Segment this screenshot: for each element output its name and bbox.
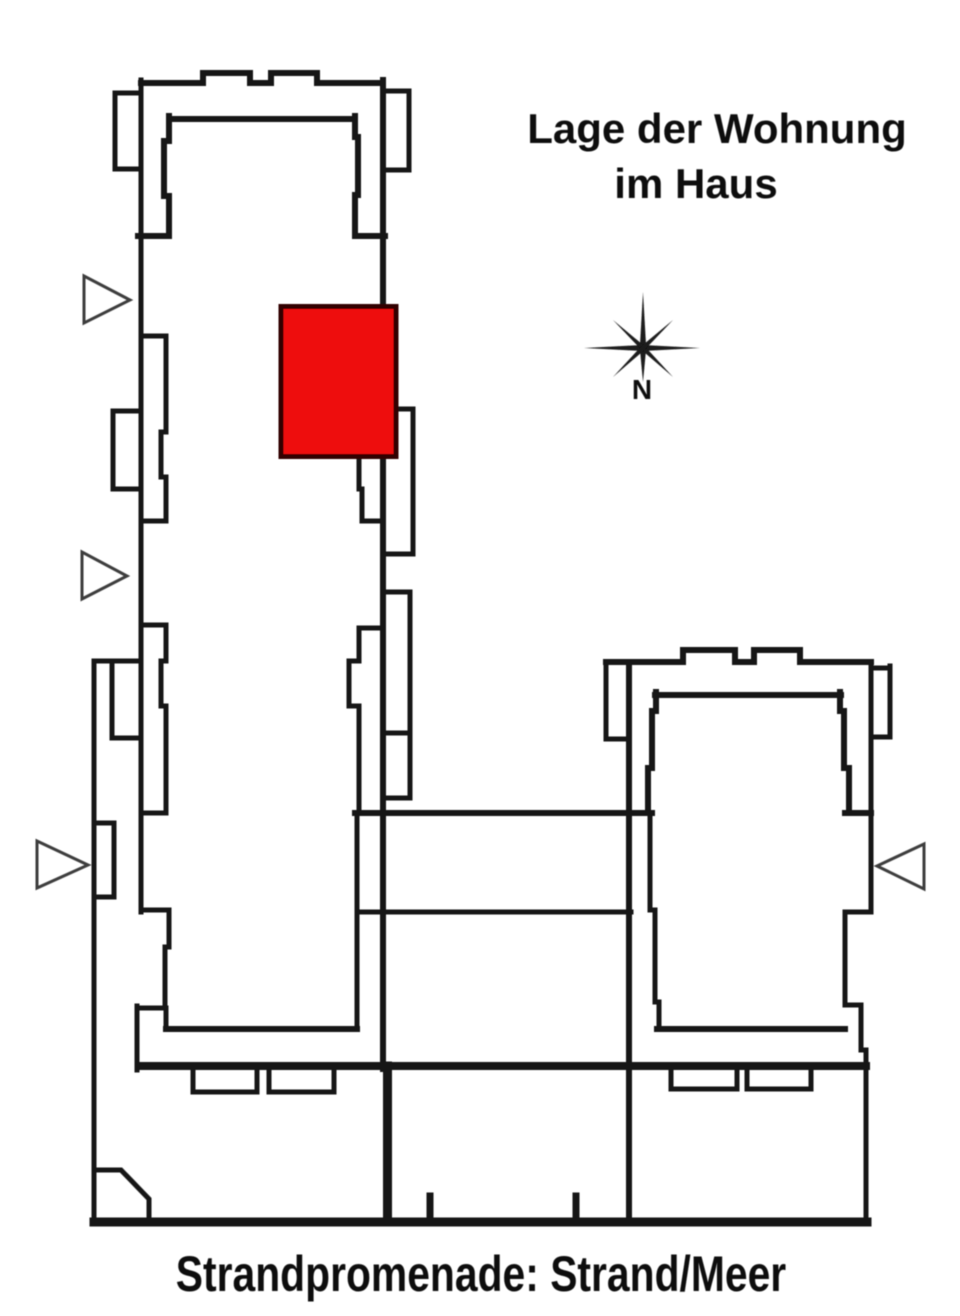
svg-text:im Haus: im Haus	[614, 160, 777, 207]
svg-text:Lage der Wohnung: Lage der Wohnung	[527, 105, 907, 152]
svg-text:N: N	[632, 374, 652, 405]
svg-text:Strandpromenade: Strand/Meer: Strandpromenade: Strand/Meer	[176, 1246, 787, 1302]
